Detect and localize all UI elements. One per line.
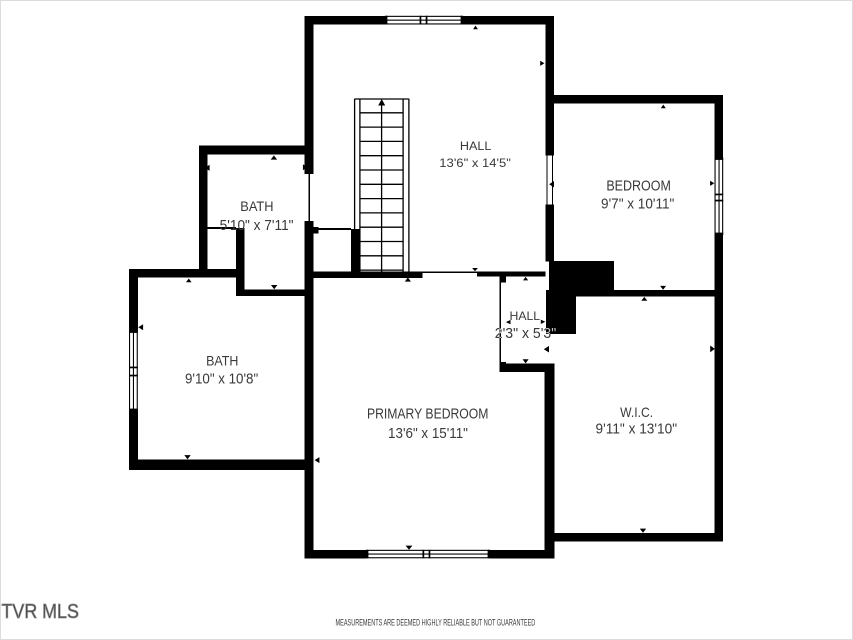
svg-text:MEASUREMENTS ARE DEEMED HIGHLY: MEASUREMENTS ARE DEEMED HIGHLY RELIABLE … xyxy=(336,617,536,627)
svg-text:9'10" x 10'8": 9'10" x 10'8" xyxy=(185,372,258,388)
svg-text:9'11" x 13'10": 9'11" x 13'10" xyxy=(596,422,678,438)
svg-text:BEDROOM: BEDROOM xyxy=(606,179,671,195)
svg-text:PRIMARY BEDROOM: PRIMARY BEDROOM xyxy=(367,407,489,423)
svg-text:5'10" x 7'11": 5'10" x 7'11" xyxy=(220,218,294,234)
svg-text:9'7" x 10'11": 9'7" x 10'11" xyxy=(601,197,674,213)
svg-text:BATH: BATH xyxy=(206,353,238,369)
svg-text:2'3" x 5'3": 2'3" x 5'3" xyxy=(495,326,556,342)
svg-text:W.I.C.: W.I.C. xyxy=(620,404,653,420)
svg-text:HALL: HALL xyxy=(460,139,492,153)
svg-text:HALL: HALL xyxy=(510,310,541,323)
svg-text:TVR MLS: TVR MLS xyxy=(2,600,79,623)
svg-text:13'6" x 15'11": 13'6" x 15'11" xyxy=(388,426,468,442)
svg-text:13'6" x 14'5": 13'6" x 14'5" xyxy=(439,156,511,170)
svg-text:BATH: BATH xyxy=(240,198,273,214)
